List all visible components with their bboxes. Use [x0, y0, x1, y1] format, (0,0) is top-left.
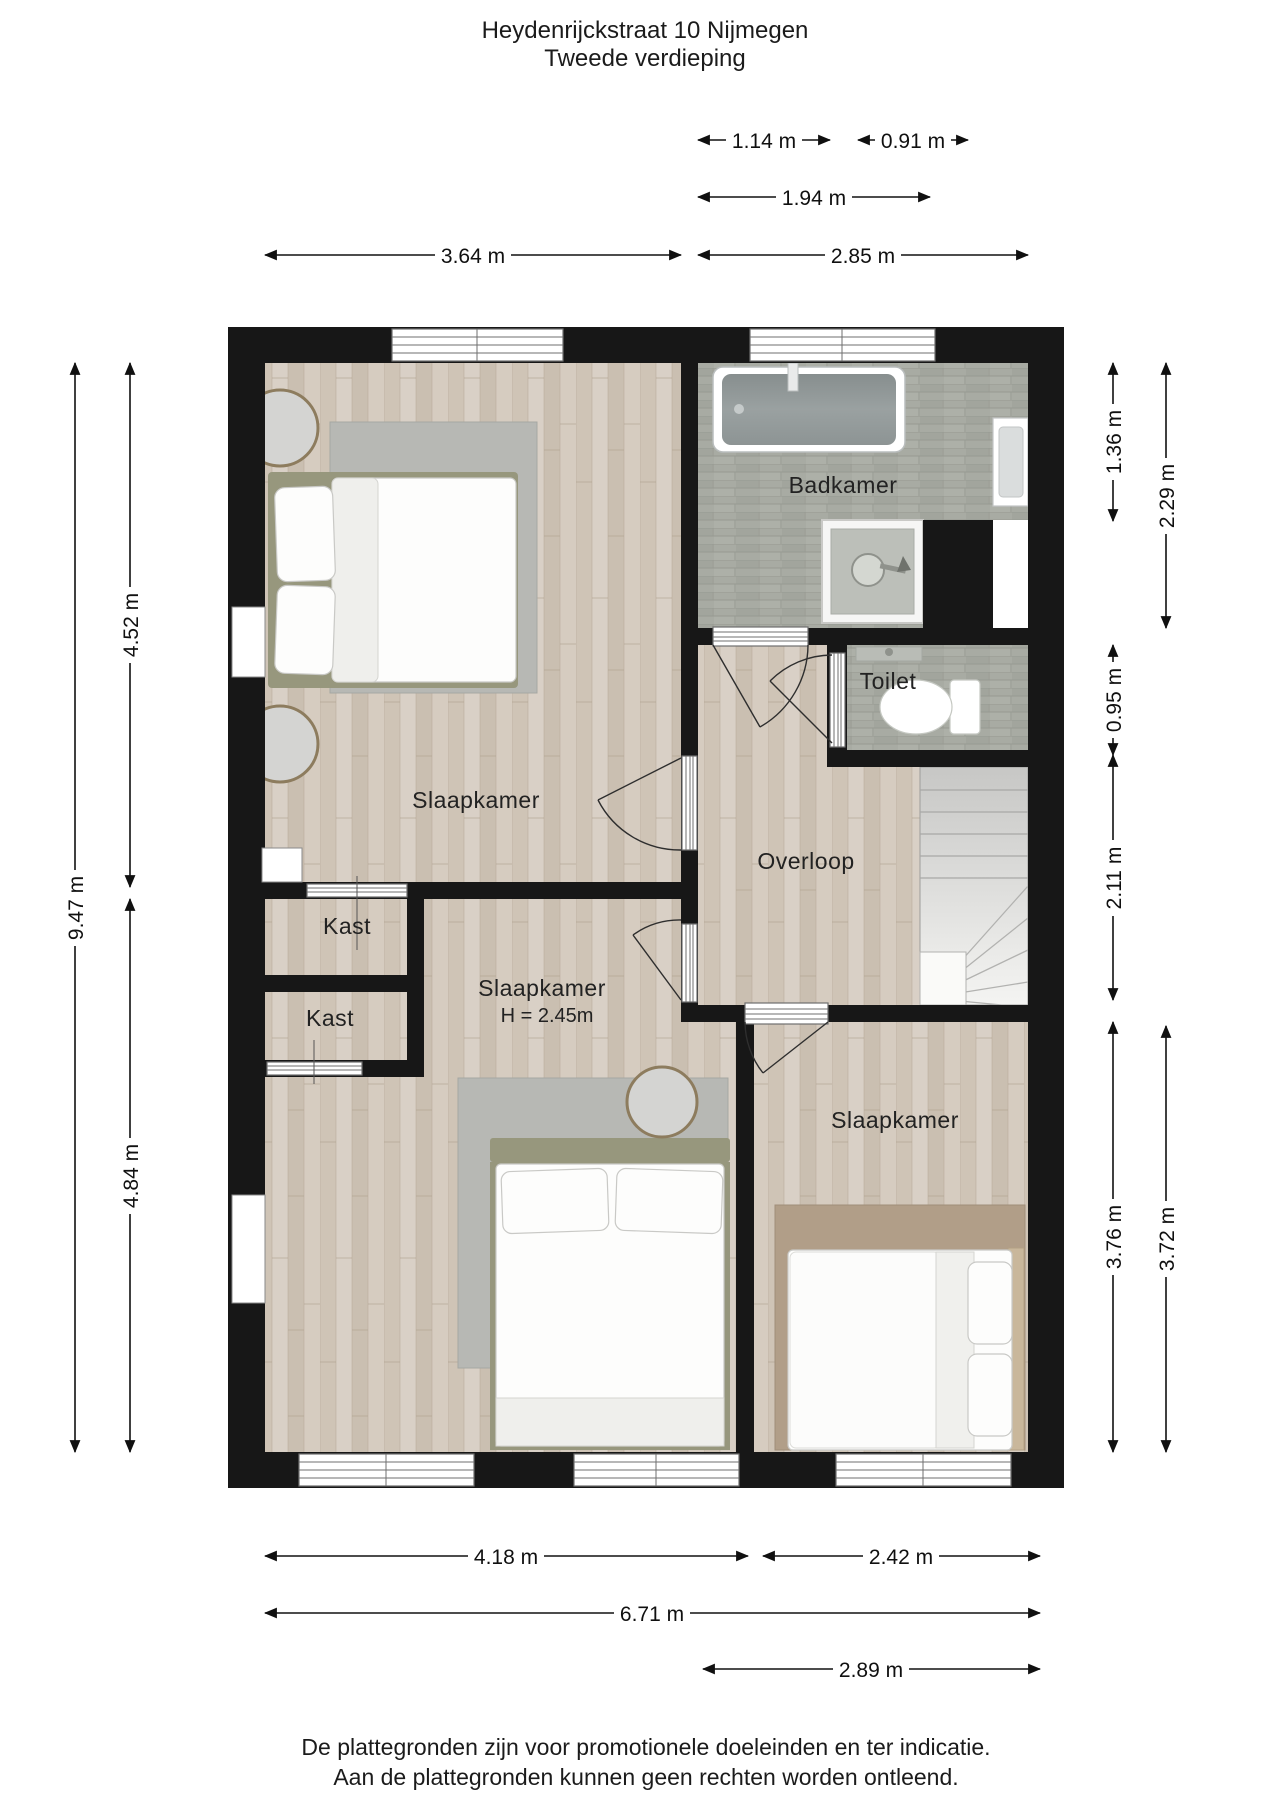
dimension-3-72: 3.72 m [1153, 1026, 1179, 1452]
dimension-0-95: 0.95 m [1100, 645, 1126, 755]
room-label-toilet: Toilet [860, 668, 917, 694]
window [299, 1454, 474, 1486]
svg-text:2.89 m: 2.89 m [839, 1659, 903, 1682]
room-label-badkamer: Badkamer [789, 472, 898, 498]
svg-text:3.72 m: 3.72 m [1156, 1207, 1179, 1271]
dimension-3-76: 3.76 m [1100, 1022, 1126, 1452]
dimension-1-94: 1.94 m [698, 184, 930, 210]
plan-title: Heydenrijckstraat 10 Nijmegen [482, 17, 809, 44]
window [574, 1454, 739, 1486]
single-bed [788, 1248, 1024, 1450]
disclaimer-line-2: Aan de plattegronden kunnen geen rechten… [333, 1764, 958, 1790]
svg-text:1.94 m: 1.94 m [782, 187, 846, 210]
dimension-2-85: 2.85 m [698, 242, 1028, 268]
svg-text:2.42 m: 2.42 m [869, 1546, 933, 1569]
stairs [920, 767, 1028, 1005]
svg-text:3.64 m: 3.64 m [441, 245, 505, 268]
dimension-3-64: 3.64 m [265, 242, 681, 268]
shower [822, 520, 923, 623]
floorplan-page: Badkamer Toilet Overloop Slaapkamer Kast… [0, 0, 1280, 1810]
room-label-ceiling-height: H = 2.45m [501, 1005, 594, 1027]
svg-text:9.47 m: 9.47 m [65, 876, 88, 940]
svg-text:2.11 m: 2.11 m [1103, 847, 1126, 910]
svg-text:1.14 m: 1.14 m [732, 130, 796, 153]
duct-block [923, 520, 993, 628]
svg-text:2.85 m: 2.85 m [831, 245, 895, 268]
svg-text:1.36 m: 1.36 m [1103, 410, 1126, 474]
disclaimer-line-1: De plattegronden zijn voor promotionele … [301, 1734, 990, 1760]
void [993, 520, 1028, 628]
dimension-6-71: 6.71 m [265, 1600, 1040, 1626]
double-bed [490, 1138, 730, 1450]
dimension-0-91: 0.91 m [858, 127, 968, 153]
dimension-2-89: 2.89 m [703, 1656, 1040, 1682]
side-table [627, 1067, 697, 1137]
svg-text:6.71 m: 6.71 m [620, 1603, 684, 1626]
svg-text:0.91 m: 0.91 m [881, 130, 945, 153]
floor-plan: Badkamer Toilet Overloop Slaapkamer Kast… [0, 0, 1280, 1810]
room-label-slaapkamer-2: Slaapkamer [478, 975, 606, 1001]
dimension-2-42: 2.42 m [763, 1543, 1040, 1569]
svg-text:4.52 m: 4.52 m [120, 593, 143, 657]
dimension-9-47: 9.47 m [62, 363, 88, 1452]
room-label-overloop: Overloop [757, 848, 854, 874]
svg-text:4.18 m: 4.18 m [474, 1546, 538, 1569]
dimension-2-29: 2.29 m [1153, 363, 1179, 628]
window [750, 329, 935, 361]
room-label-kast-2: Kast [306, 1005, 354, 1031]
niche [262, 848, 302, 882]
bathtub [713, 363, 905, 452]
dimension-4-84: 4.84 m [117, 899, 143, 1452]
plan-subtitle: Tweede verdieping [544, 45, 745, 72]
dimension-4-52: 4.52 m [117, 363, 143, 887]
niche [232, 607, 265, 677]
dimension-2-11: 2.11 m [1100, 755, 1126, 1000]
svg-text:2.29 m: 2.29 m [1156, 464, 1179, 528]
room-label-slaapkamer-1: Slaapkamer [412, 787, 540, 813]
dimension-1-36: 1.36 m [1100, 363, 1126, 521]
svg-text:3.76 m: 3.76 m [1103, 1205, 1126, 1269]
double-bed [268, 472, 518, 688]
svg-text:4.84 m: 4.84 m [120, 1144, 143, 1208]
window [392, 329, 563, 361]
dimension-4-18: 4.18 m [265, 1543, 748, 1569]
washbasin [993, 418, 1028, 506]
room-label-slaapkamer-3: Slaapkamer [831, 1107, 959, 1133]
niche [232, 1195, 265, 1303]
room-label-kast-1: Kast [323, 913, 371, 939]
svg-text:0.95 m: 0.95 m [1103, 668, 1126, 732]
window [836, 1454, 1011, 1486]
dimension-1-14: 1.14 m [698, 127, 830, 153]
